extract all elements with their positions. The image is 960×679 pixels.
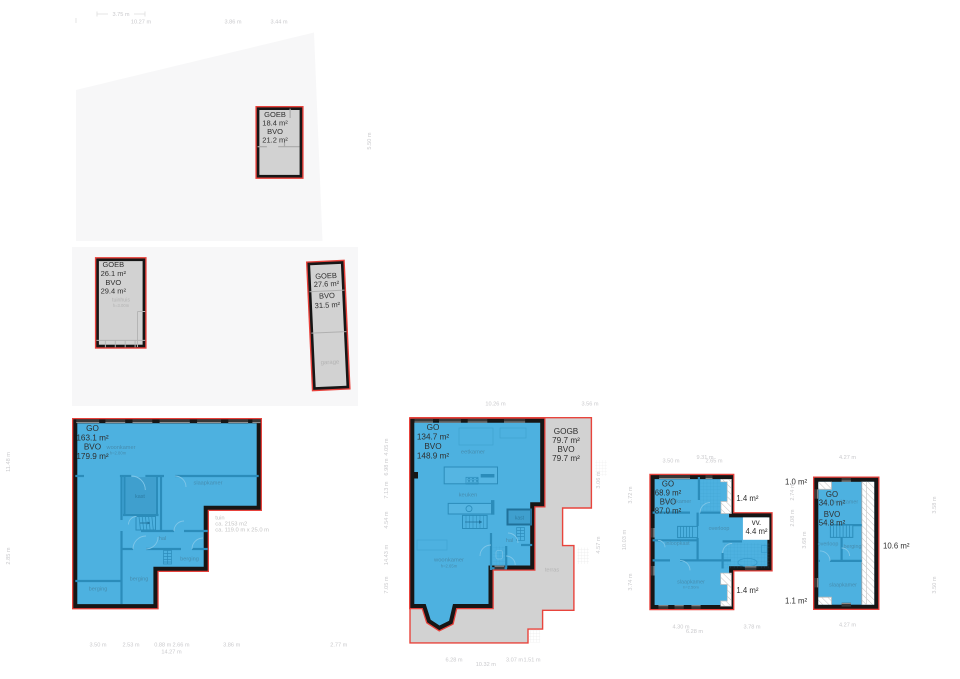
svg-text:134.7 m²: 134.7 m² xyxy=(417,433,450,442)
svg-text:163.1 m²: 163.1 m² xyxy=(76,433,109,442)
svg-text:14.27 m: 14.27 m xyxy=(161,650,182,656)
svg-text:2.66 m: 2.66 m xyxy=(172,643,189,649)
svg-text:kast: kast xyxy=(135,494,145,500)
svg-text:11.48 m: 11.48 m xyxy=(6,452,12,472)
svg-text:kast: kast xyxy=(515,516,525,522)
svg-text:0.88 m: 0.88 m xyxy=(154,643,171,649)
svg-text:berging: berging xyxy=(130,577,149,583)
svg-text:10.6 m²: 10.6 m² xyxy=(883,542,910,551)
svg-text:6.98 m: 6.98 m xyxy=(384,458,390,475)
svg-text:1.4 m²: 1.4 m² xyxy=(736,494,758,503)
svg-text:ca. 119.0 m x 25.0 m: ca. 119.0 m x 25.0 m xyxy=(215,527,269,533)
svg-text:2.74 m: 2.74 m xyxy=(790,483,796,500)
svg-text:3.86 m: 3.86 m xyxy=(224,20,241,26)
svg-text:4.05 m: 4.05 m xyxy=(384,438,390,455)
svg-text:14.43 m: 14.43 m xyxy=(384,545,390,566)
svg-text:h=3.00m: h=3.00m xyxy=(113,303,130,308)
svg-text:4.27 m: 4.27 m xyxy=(839,455,856,461)
svg-text:hal: hal xyxy=(506,538,513,544)
svg-text:29.4 m²: 29.4 m² xyxy=(101,287,127,296)
svg-text:1.51 m: 1.51 m xyxy=(523,658,540,664)
svg-text:GOEB: GOEB xyxy=(102,260,124,269)
svg-text:BVO: BVO xyxy=(84,443,101,452)
svg-text:27.6 m²: 27.6 m² xyxy=(314,279,340,289)
svg-text:2.85 m: 2.85 m xyxy=(6,547,12,564)
svg-text:79.7 m²: 79.7 m² xyxy=(552,436,580,445)
svg-text:slaapkamer: slaapkamer xyxy=(194,481,223,487)
svg-text:overloop: overloop xyxy=(709,526,730,532)
svg-text:GO: GO xyxy=(662,480,674,489)
svg-text:31.5 m²: 31.5 m² xyxy=(314,300,340,310)
svg-text:3.07 m: 3.07 m xyxy=(506,658,523,664)
svg-text:eetkamer: eetkamer xyxy=(461,450,485,456)
svg-text:overloop: overloop xyxy=(818,542,839,548)
svg-text:3.72 m: 3.72 m xyxy=(628,486,634,503)
svg-text:berging: berging xyxy=(89,587,108,593)
svg-text:2.08 m: 2.08 m xyxy=(790,509,796,526)
svg-text:3.68 m: 3.68 m xyxy=(802,531,808,548)
svg-text:keuken: keuken xyxy=(459,493,478,499)
svg-text:GOGB: GOGB xyxy=(554,427,579,436)
svg-text:slaapkamer: slaapkamer xyxy=(829,583,857,589)
svg-text:148.9 m²: 148.9 m² xyxy=(417,451,450,460)
svg-text:3.74 m: 3.74 m xyxy=(628,573,634,590)
svg-text:10.26 m: 10.26 m xyxy=(485,402,506,408)
svg-text:79.7 m²: 79.7 m² xyxy=(552,454,580,463)
svg-text:3.86 m: 3.86 m xyxy=(223,643,240,649)
svg-text:1.1 m²: 1.1 m² xyxy=(785,597,807,606)
svg-text:3.75 m: 3.75 m xyxy=(112,12,129,18)
svg-text:26.1 m²: 26.1 m² xyxy=(101,269,127,278)
svg-text:4.4 m²: 4.4 m² xyxy=(745,527,767,536)
svg-text:werkkamer: werkkamer xyxy=(664,499,692,505)
svg-text:4.57 m: 4.57 m xyxy=(596,536,602,553)
svg-text:inloopkast: inloopkast xyxy=(665,541,690,547)
svg-text:21.2 m²: 21.2 m² xyxy=(262,136,288,145)
svg-text:2.53 m: 2.53 m xyxy=(122,643,139,649)
svg-text:GO: GO xyxy=(427,423,440,432)
svg-text:7.05 m: 7.05 m xyxy=(384,576,390,593)
svg-text:GO: GO xyxy=(86,424,99,433)
svg-text:87.0 m²: 87.0 m² xyxy=(655,507,682,516)
svg-text:4.27 m: 4.27 m xyxy=(839,623,856,629)
svg-text:werkkamer: werkkamer xyxy=(831,500,859,506)
svg-text:54.8 m²: 54.8 m² xyxy=(819,518,846,527)
svg-text:3.56 m: 3.56 m xyxy=(581,402,598,408)
svg-text:10.03 m: 10.03 m xyxy=(622,530,628,551)
svg-text:10.32 m: 10.32 m xyxy=(476,662,497,668)
svg-text:hal: hal xyxy=(159,536,166,542)
svg-text:10.27 m: 10.27 m xyxy=(131,20,152,26)
svg-text:BVO: BVO xyxy=(424,442,441,451)
svg-text:3.50 m: 3.50 m xyxy=(932,576,938,593)
svg-text:vv.: vv. xyxy=(752,518,761,527)
svg-text:3.78 m: 3.78 m xyxy=(743,625,760,631)
svg-text:68.9 m²: 68.9 m² xyxy=(655,489,682,498)
svg-text:3.44 m: 3.44 m xyxy=(270,20,287,26)
svg-text:BVO: BVO xyxy=(105,278,121,287)
svg-text:3.58 m: 3.58 m xyxy=(932,496,938,513)
svg-text:h=2.80m: h=2.80m xyxy=(110,451,127,456)
svg-text:garage: garage xyxy=(321,360,341,367)
svg-text:1.0 m²: 1.0 m² xyxy=(785,478,807,487)
svg-text:3.50 m: 3.50 m xyxy=(662,458,679,464)
svg-text:BVO: BVO xyxy=(557,445,574,454)
svg-text:h=2.65m: h=2.65m xyxy=(441,564,458,569)
svg-text:6.28 m: 6.28 m xyxy=(445,658,462,664)
svg-text:3.50 m: 3.50 m xyxy=(89,643,106,649)
svg-text:berging: berging xyxy=(844,544,862,550)
svg-text:6.28 m: 6.28 m xyxy=(686,629,703,635)
svg-text:BVO: BVO xyxy=(319,291,335,301)
svg-text:2.65 m: 2.65 m xyxy=(705,458,722,464)
svg-text:7.13 m: 7.13 m xyxy=(384,481,390,498)
svg-text:2.77 m: 2.77 m xyxy=(330,643,347,649)
svg-text:1.4 m²: 1.4 m² xyxy=(736,586,758,595)
svg-text:berging: berging xyxy=(180,557,199,563)
svg-text:179.9 m²: 179.9 m² xyxy=(76,452,109,461)
svg-text:5.50 m: 5.50 m xyxy=(367,132,373,149)
svg-text:4.54 m: 4.54 m xyxy=(384,511,390,528)
svg-text:h=2.50m: h=2.50m xyxy=(683,585,699,590)
svg-text:3.06 m: 3.06 m xyxy=(596,471,602,488)
svg-text:terras: terras xyxy=(545,568,560,574)
